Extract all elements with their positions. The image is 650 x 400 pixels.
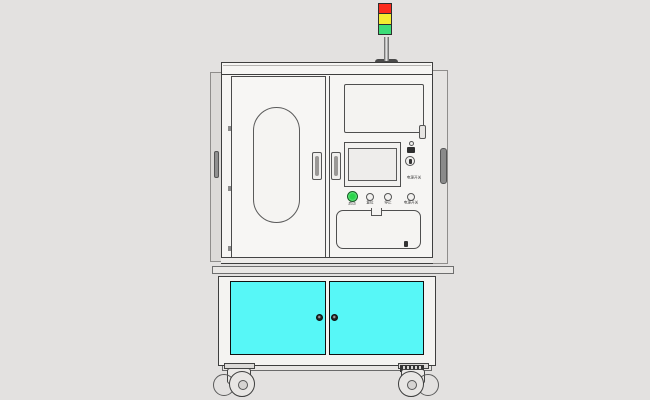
lower-right-door[interactable] xyxy=(329,281,424,355)
hinge-mark xyxy=(228,186,231,191)
power-switch-label: 电源开关 xyxy=(394,169,434,187)
start-button-icon[interactable] xyxy=(347,191,358,202)
tower-pole xyxy=(384,37,389,61)
button-reset[interactable]: 复位 xyxy=(361,191,379,209)
table-shelf xyxy=(212,266,454,274)
port-icon xyxy=(407,147,415,153)
key-switch-icon[interactable] xyxy=(405,156,415,166)
lower-left-door[interactable] xyxy=(230,281,326,355)
button-start[interactable]: 启动 xyxy=(343,191,361,210)
right-side-handle[interactable] xyxy=(440,148,447,184)
signal-tower xyxy=(378,4,392,39)
left-caster-wheel-icon xyxy=(229,371,255,397)
tower-light-green-icon xyxy=(378,24,392,35)
hinge-mark xyxy=(228,126,231,131)
window-latch[interactable] xyxy=(419,125,426,139)
panel-lock-icon[interactable] xyxy=(404,241,408,247)
panel-notch-handle[interactable] xyxy=(371,208,382,216)
touch-screen[interactable] xyxy=(348,148,397,181)
button-row: 启动 复位 停止 电源开关 xyxy=(343,191,433,209)
top-rail xyxy=(221,62,433,75)
upper-access-window xyxy=(344,84,424,133)
left-door-knob-icon[interactable] xyxy=(316,314,323,321)
button-power[interactable]: 电源开关 xyxy=(397,191,425,209)
right-door-handle[interactable] xyxy=(331,152,341,180)
cabinet-bottom-band xyxy=(221,257,433,264)
button-stop[interactable]: 停止 xyxy=(379,191,397,209)
indicator-lamp-icon xyxy=(409,141,414,146)
oval-viewing-window xyxy=(253,107,300,223)
left-side-handle[interactable] xyxy=(214,151,219,178)
right-caster-wheel-icon xyxy=(398,371,424,397)
hinge-mark xyxy=(228,246,231,251)
scene: 电源开关 启动 复位 停止 电源开关 xyxy=(0,0,650,400)
right-door-knob-icon[interactable] xyxy=(331,314,338,321)
left-door-handle[interactable] xyxy=(312,152,322,180)
